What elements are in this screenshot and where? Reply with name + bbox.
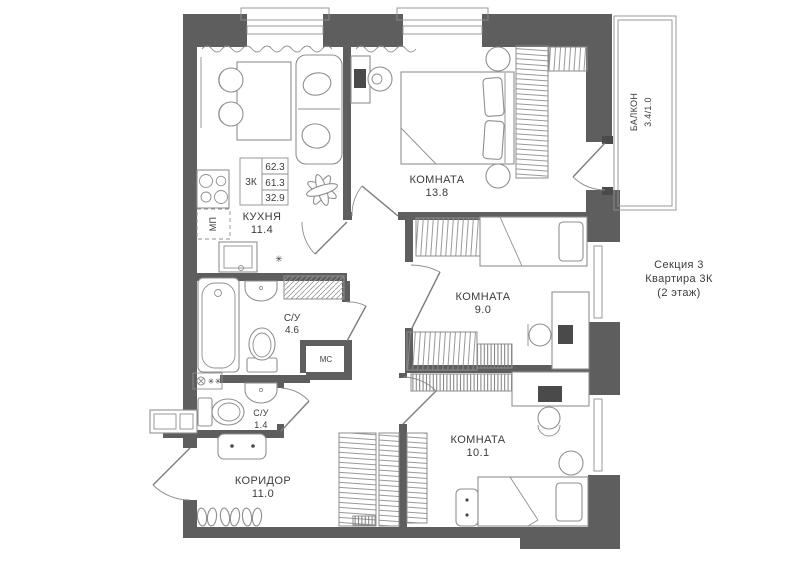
bedroom-furniture — [351, 46, 587, 188]
room10-area: 10.1 — [466, 447, 489, 459]
shoes — [197, 507, 263, 526]
balcony-area: 3.4/1.0 — [643, 97, 653, 127]
window-kitchen — [241, 8, 329, 47]
balcony — [602, 16, 676, 210]
door-balcony — [573, 143, 605, 190]
svg-text:✳: ✳ — [208, 377, 215, 386]
door-bath — [347, 302, 366, 341]
kitchen-area: 11.4 — [251, 224, 273, 236]
single-bed-room9 — [480, 217, 587, 266]
single-bed-room10 — [478, 477, 588, 526]
room9-area: 9.0 — [475, 304, 492, 316]
area-total: 62.3 — [265, 162, 285, 173]
dining-table — [237, 62, 291, 140]
wc-label: С/У — [253, 408, 269, 418]
fridge-mark: ✳ — [275, 254, 283, 264]
desk-room10 — [512, 372, 589, 436]
kitchen-label: КУХНЯ — [243, 211, 282, 223]
kitchen-sink — [219, 242, 257, 272]
shelf-bedroom — [549, 47, 587, 71]
washing-machine-slot — [284, 276, 344, 299]
entry-cabinet — [150, 410, 197, 433]
bench-room10 — [456, 489, 478, 526]
risers: ✳ ✳ — [193, 373, 222, 389]
room10-furniture — [407, 372, 589, 526]
bathtub — [198, 278, 239, 372]
pouf — [559, 451, 583, 475]
door-kitchen — [302, 222, 347, 254]
window-room9 — [588, 242, 620, 322]
door-wc — [281, 388, 309, 431]
area-kitchen: 32.9 — [265, 193, 285, 204]
note-section: Секция 3 — [654, 259, 704, 271]
window-room10 — [588, 395, 620, 475]
wardrobe-corridor-2 — [379, 433, 399, 526]
clothes-rail-room10 — [411, 374, 512, 391]
note-floor: (2 этаж) — [657, 287, 700, 299]
door-room9 — [411, 265, 440, 330]
stove — [197, 170, 229, 208]
apartment-type: 3К — [245, 177, 257, 188]
plant — [305, 173, 338, 206]
section-note: Секция 3 Квартира 3К (2 этаж) — [645, 259, 713, 299]
apartment-info-table: 3К 62.3 61.3 32.9 — [240, 158, 288, 205]
corridor-area: 11.0 — [252, 488, 274, 500]
wc-sink — [245, 383, 277, 403]
wardrobe-corridor-1 — [339, 433, 376, 526]
bath-fixtures: МС — [198, 276, 344, 372]
bath-area: 4.6 — [285, 325, 299, 336]
wardrobe-room10 — [407, 433, 427, 523]
nightstand — [486, 164, 510, 188]
bedroom-area: 13.8 — [425, 187, 448, 199]
sofa — [296, 55, 342, 164]
area-living: 61.3 — [265, 178, 285, 189]
bath-sink — [245, 281, 277, 301]
window-bedroom — [397, 8, 488, 47]
storage-label: МС — [320, 355, 333, 364]
bath-label: С/У — [284, 313, 301, 324]
appliance-slot-label: МП — [208, 217, 218, 232]
room9-label: КОМНАТА — [456, 291, 511, 303]
svg-text:✳: ✳ — [215, 377, 222, 386]
desk-bedroom — [351, 56, 392, 103]
bath-toilet — [247, 328, 277, 372]
floor-plan: ✳ 3К 62.3 61.3 32.9 — [0, 0, 800, 565]
wc-area: 1.4 — [254, 420, 267, 430]
wardrobe-bedroom — [516, 46, 548, 178]
bedroom-label: КОМНАТА — [410, 174, 465, 186]
dresser-room9 — [477, 344, 512, 368]
balcony-label: БАЛКОН — [629, 93, 639, 131]
nightstand — [486, 47, 510, 71]
wardrobe-room9-bottom — [407, 332, 477, 370]
wardrobe-room9-top — [416, 218, 482, 256]
double-bed — [401, 72, 514, 164]
door-entry — [153, 448, 190, 500]
bench-corridor — [218, 434, 266, 459]
desk-room9 — [528, 292, 589, 369]
corridor-label: КОРИДОР — [235, 475, 291, 487]
wc-toilet — [198, 398, 244, 426]
room10-label: КОМНАТА — [451, 434, 506, 446]
shoe-box — [353, 516, 375, 525]
door-bedroom — [352, 186, 398, 216]
note-apartment: Квартира 3К — [645, 273, 713, 285]
